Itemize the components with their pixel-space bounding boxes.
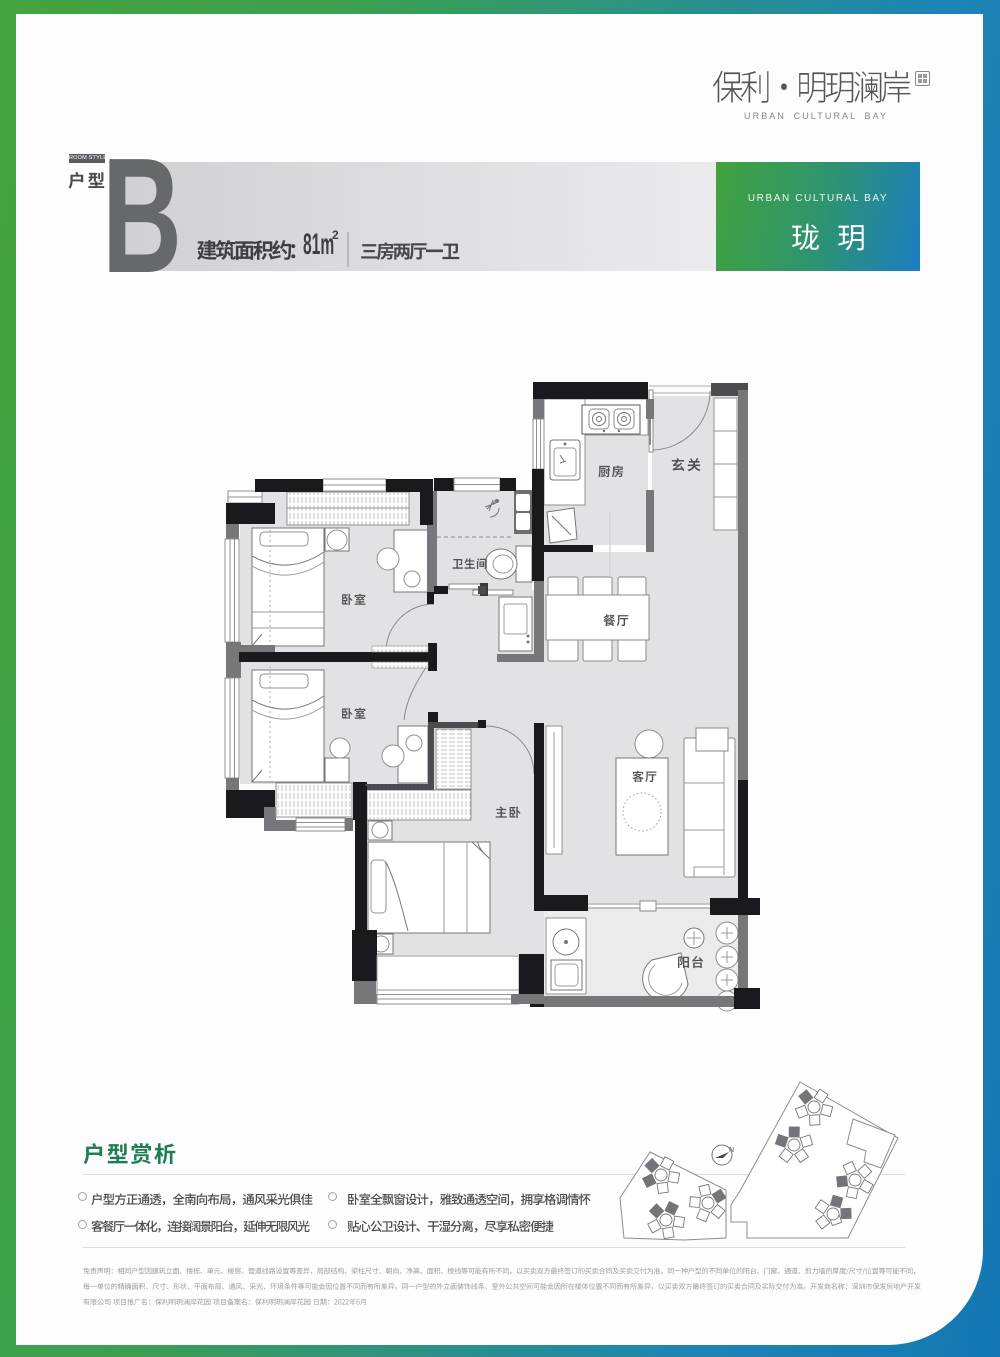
svg-text:N: N [729, 1147, 734, 1154]
